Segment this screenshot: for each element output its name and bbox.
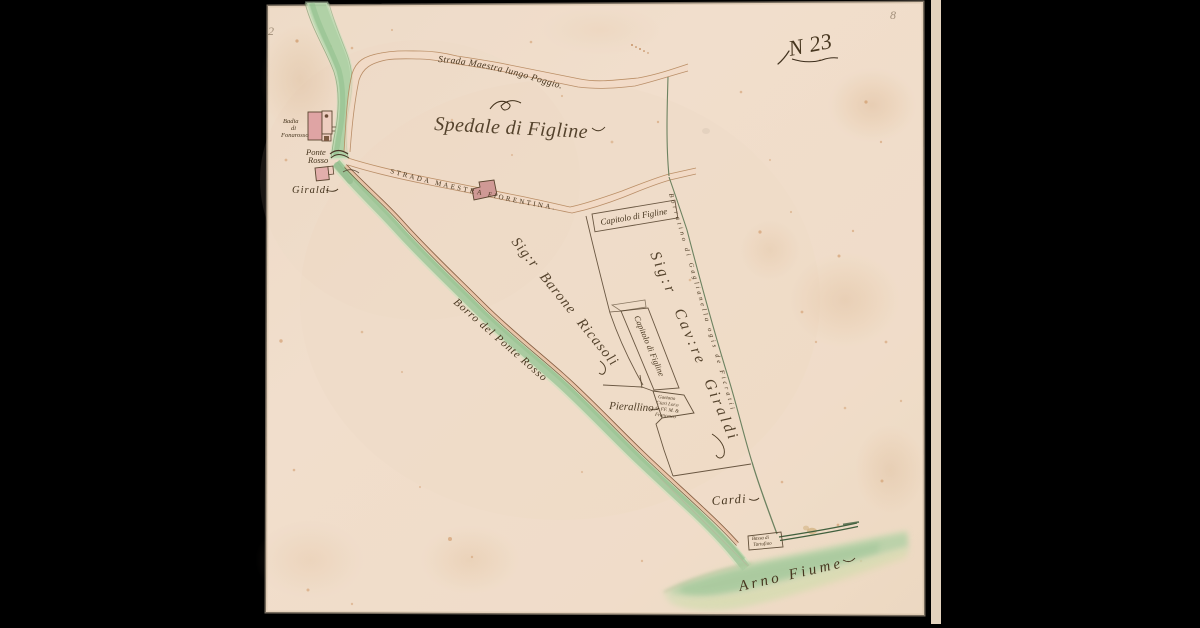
svg-text:Cardi: Cardi xyxy=(711,492,747,508)
svg-text:Giraldi: Giraldi xyxy=(292,185,330,196)
svg-text:Rosso: Rosso xyxy=(307,155,328,165)
svg-text:di: di xyxy=(291,125,296,132)
svg-text:Badia: Badia xyxy=(283,118,299,125)
svg-text:Fonarosso: Fonarosso xyxy=(280,132,309,139)
svg-text:Pierallino: Pierallino xyxy=(608,400,655,414)
